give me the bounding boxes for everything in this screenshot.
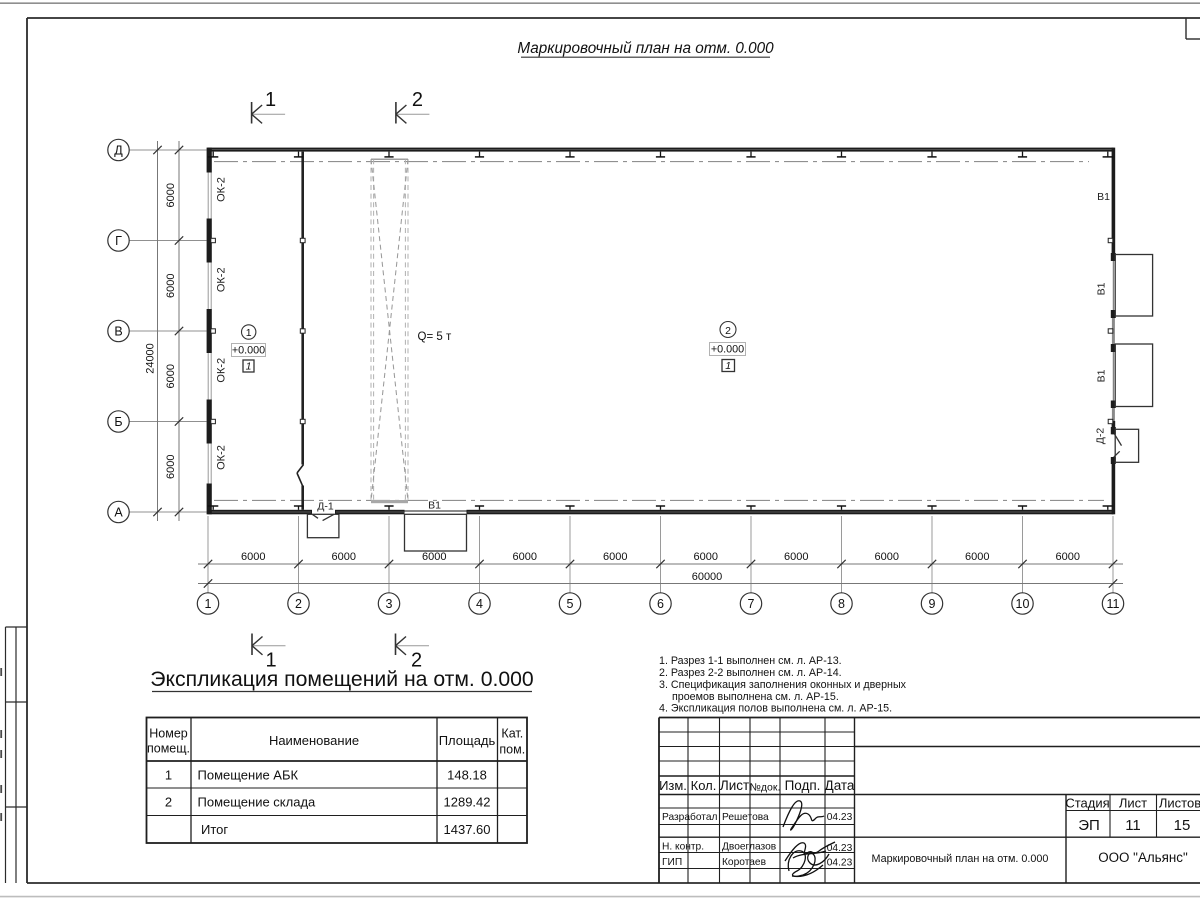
- svg-text:ОК-2: ОК-2: [216, 177, 228, 202]
- svg-text:3. Спецификация заполнения око: 3. Спецификация заполнения оконных и две…: [659, 679, 907, 691]
- svg-text:+0.000: +0.000: [232, 345, 265, 357]
- svg-text:Двоеглазов: Двоеглазов: [722, 842, 776, 853]
- svg-text:1: 1: [246, 327, 252, 339]
- svg-text:8: 8: [838, 597, 845, 611]
- svg-text:6000: 6000: [513, 551, 537, 563]
- svg-text:6000: 6000: [165, 183, 177, 207]
- svg-text:Д: Д: [114, 144, 123, 158]
- svg-text:Б: Б: [114, 415, 122, 429]
- svg-text:Листов: Листов: [1159, 796, 1200, 811]
- svg-text:Номер: Номер: [149, 727, 188, 741]
- svg-text:В1: В1: [1096, 282, 1108, 295]
- svg-text:6000: 6000: [1056, 551, 1080, 563]
- svg-text:Г: Г: [115, 234, 122, 248]
- svg-text:В1: В1: [1097, 191, 1110, 203]
- svg-text:04.23: 04.23: [827, 858, 853, 869]
- svg-text:1289.42: 1289.42: [444, 795, 491, 810]
- svg-text:2: 2: [725, 325, 731, 337]
- svg-text:6000: 6000: [603, 551, 627, 563]
- svg-text:6000: 6000: [165, 274, 177, 298]
- svg-text:60000: 60000: [692, 571, 723, 583]
- svg-text:ГИП: ГИП: [662, 857, 682, 868]
- svg-text:1: 1: [165, 768, 172, 783]
- svg-text:ОК-2: ОК-2: [216, 267, 228, 292]
- svg-text:04.23: 04.23: [827, 812, 853, 823]
- svg-text:6000: 6000: [965, 551, 989, 563]
- svg-text:1: 1: [246, 361, 252, 373]
- svg-text:2: 2: [295, 597, 302, 611]
- svg-text:6000: 6000: [875, 551, 899, 563]
- svg-text:№док.: №док.: [750, 782, 781, 794]
- svg-text:3: 3: [386, 597, 393, 611]
- svg-text:4: 4: [476, 597, 483, 611]
- svg-text:Решетова: Решетова: [722, 812, 769, 823]
- svg-text:15: 15: [1174, 817, 1191, 834]
- svg-text:6000: 6000: [784, 551, 808, 563]
- svg-text:2: 2: [165, 795, 172, 810]
- svg-text:1: 1: [265, 89, 276, 111]
- svg-text:7: 7: [748, 597, 755, 611]
- svg-text:Лист: Лист: [720, 778, 749, 793]
- svg-text:11: 11: [1125, 817, 1141, 834]
- svg-text:Кол.: Кол.: [691, 778, 717, 793]
- svg-text:Экспликация помещений на отм.: Экспликация помещений на отм. 0.000: [150, 668, 533, 691]
- svg-text:1: 1: [725, 360, 731, 372]
- svg-text:В1: В1: [1096, 369, 1108, 382]
- svg-text:6000: 6000: [165, 455, 177, 479]
- svg-text:Итог: Итог: [201, 822, 228, 837]
- svg-text:Н. контр.: Н. контр.: [662, 842, 704, 853]
- svg-text:6000: 6000: [694, 551, 718, 563]
- svg-text:148.18: 148.18: [447, 768, 487, 783]
- svg-text:+0.000: +0.000: [711, 344, 744, 356]
- svg-text:24000: 24000: [145, 343, 157, 374]
- svg-text:11: 11: [1107, 597, 1120, 611]
- svg-text:Дата: Дата: [825, 778, 855, 793]
- svg-text:5: 5: [567, 597, 574, 611]
- svg-text:ООО "Альянс": ООО "Альянс": [1098, 850, 1188, 865]
- svg-text:помещ.: помещ.: [147, 742, 190, 756]
- svg-text:9: 9: [929, 597, 936, 611]
- svg-text:проемов выполнена см. л. АР-15: проемов выполнена см. л. АР-15.: [672, 691, 839, 703]
- svg-text:Маркировочный план на отм. 0.0: Маркировочный план на отм. 0.000: [517, 40, 774, 57]
- svg-text:В: В: [114, 325, 122, 339]
- svg-text:Подп.: Подп.: [785, 778, 821, 793]
- svg-text:Д-2: Д-2: [1095, 428, 1107, 445]
- svg-text:Коротаев: Коротаев: [722, 857, 766, 868]
- svg-text:Наименование: Наименование: [269, 733, 359, 748]
- svg-text:Стадия: Стадия: [1065, 796, 1109, 811]
- svg-text:6000: 6000: [422, 551, 446, 563]
- svg-text:Помещение АБК: Помещение АБК: [198, 768, 299, 783]
- svg-text:А: А: [114, 506, 123, 520]
- svg-text:Помещение склада: Помещение склада: [198, 795, 317, 810]
- svg-text:Маркировочный план на отм. 0.0: Маркировочный план на отм. 0.000: [872, 853, 1049, 865]
- svg-text:4. Экспликация полов выполнена: 4. Экспликация полов выполнена см. л. АР…: [659, 703, 892, 715]
- svg-text:Д-1: Д-1: [317, 500, 334, 512]
- svg-text:1. Разрез 1-1 выполнен см. л.: 1. Разрез 1-1 выполнен см. л. АР-13.: [659, 655, 842, 667]
- svg-text:Лист: Лист: [1119, 796, 1147, 811]
- svg-text:ОК-2: ОК-2: [216, 358, 228, 383]
- svg-text:ЭП: ЭП: [1078, 817, 1100, 834]
- svg-text:Кат.: Кат.: [501, 727, 523, 741]
- svg-text:6000: 6000: [332, 551, 356, 563]
- svg-text:пом.: пом.: [499, 743, 525, 757]
- svg-text:Разработал: Разработал: [662, 811, 718, 823]
- svg-text:2. Разрез 2-2 выполнен см. л.: 2. Разрез 2-2 выполнен см. л. АР-14.: [659, 667, 842, 679]
- svg-text:В1: В1: [428, 499, 441, 511]
- svg-text:2: 2: [412, 89, 423, 111]
- svg-text:1437.60: 1437.60: [444, 822, 491, 837]
- svg-text:Q= 5 т: Q= 5 т: [418, 331, 452, 343]
- svg-text:6000: 6000: [241, 551, 265, 563]
- svg-text:1: 1: [205, 597, 212, 611]
- svg-text:10: 10: [1016, 597, 1030, 611]
- svg-text:6000: 6000: [165, 364, 177, 388]
- svg-text:Площадь: Площадь: [439, 733, 496, 748]
- svg-text:Изм.: Изм.: [659, 778, 687, 793]
- svg-text:ОК-2: ОК-2: [216, 445, 228, 470]
- svg-text:6: 6: [657, 597, 664, 611]
